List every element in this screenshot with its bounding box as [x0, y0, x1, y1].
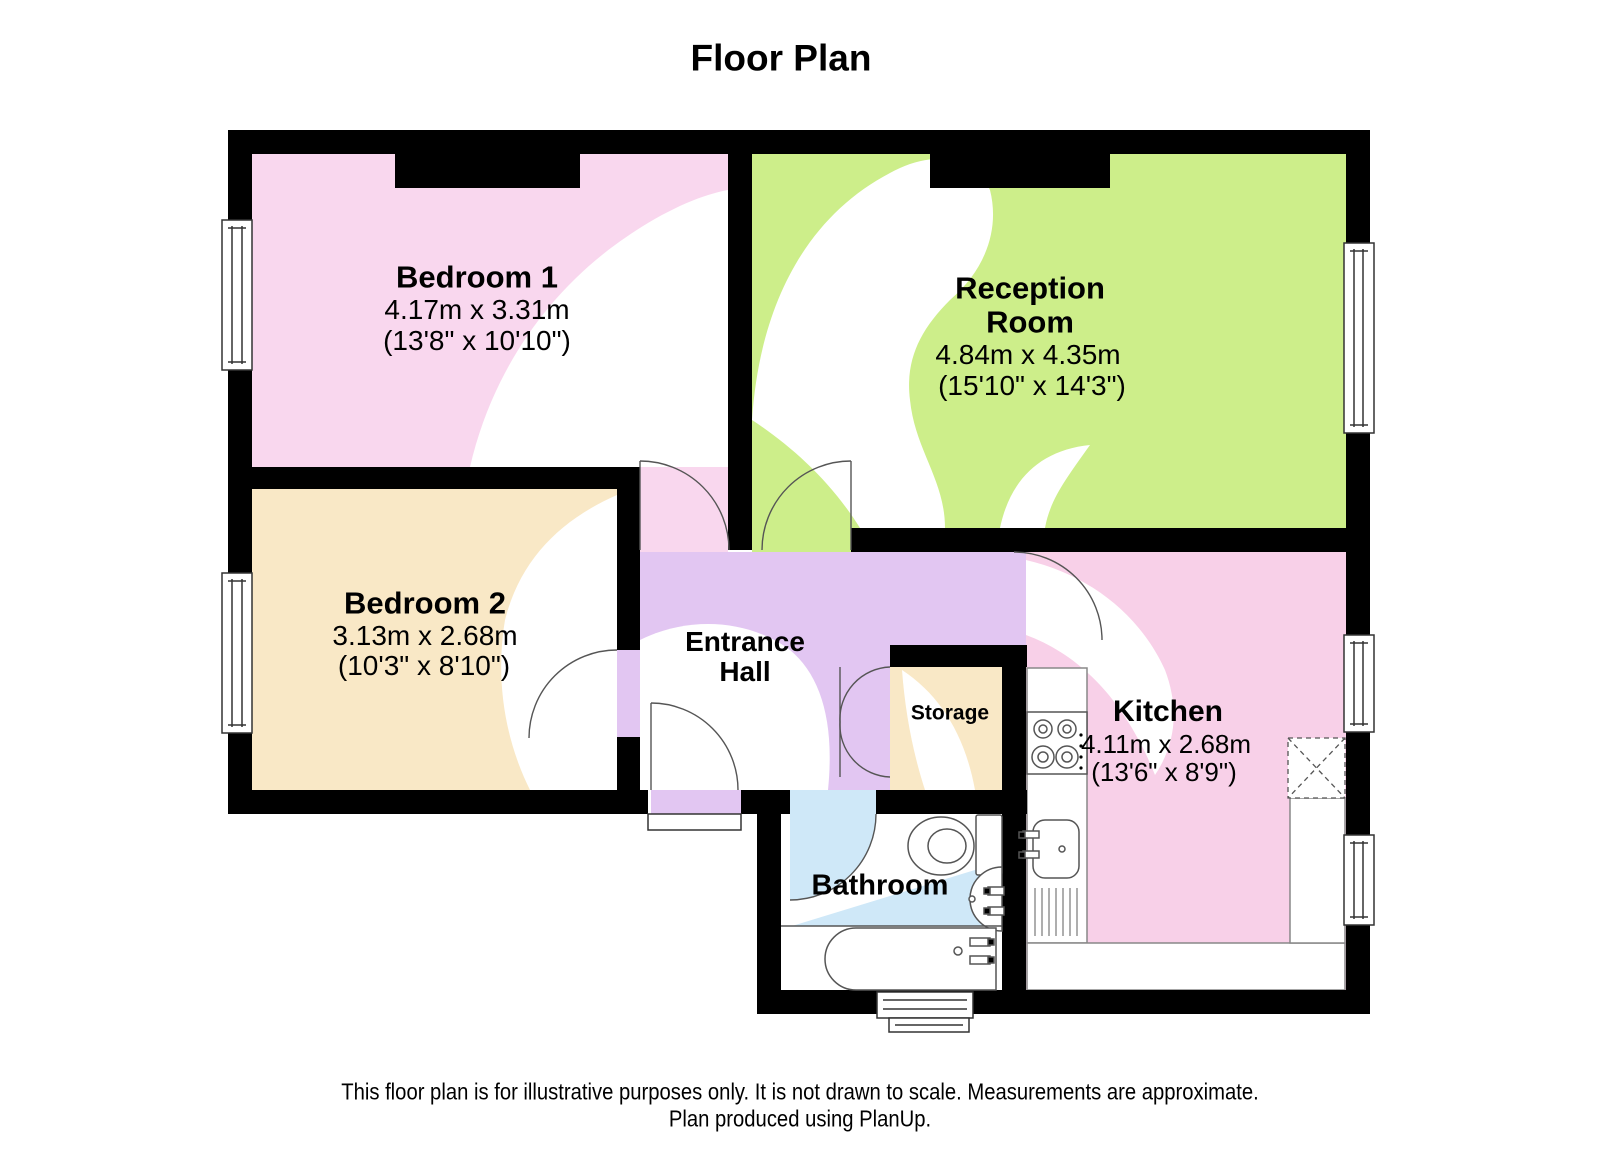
kitchen-dim-metric: 4.11m x 2.68m	[1081, 731, 1251, 757]
bedroom1-dim-metric: 4.17m x 3.31m	[384, 296, 569, 324]
toilet	[908, 815, 1002, 875]
chimney-breast-reception	[930, 154, 1110, 188]
bedroom2-label: Bedroom 2	[344, 588, 506, 619]
entrance-hall-label-line2: Hall	[719, 658, 770, 686]
kitchen-counter-bottom	[1027, 943, 1345, 990]
bedroom1-label: Bedroom 1	[396, 262, 558, 293]
window-reception	[1344, 243, 1374, 433]
reception-dim-metric: 4.84m x 4.35m	[935, 341, 1120, 369]
floor-plan-canvas	[0, 0, 1600, 1163]
bedroom2-dim-metric: 3.13m x 2.68m	[332, 622, 517, 650]
kitchen-dim-imperial: (13'6" x 8'9")	[1091, 759, 1236, 785]
reception-label-line2: Room	[986, 307, 1074, 338]
page-title: Floor Plan	[691, 40, 872, 77]
bathroom-label: Bathroom	[812, 872, 949, 901]
window-bathroom	[877, 992, 973, 1032]
kitchen-label: Kitchen	[1113, 697, 1223, 727]
chimney-breast-bedroom1	[395, 154, 580, 188]
hob	[1027, 712, 1087, 774]
window-bedroom1	[222, 220, 252, 370]
disclaimer-text: This floor plan is for illustrative purp…	[341, 1081, 1259, 1104]
reception-label-line1: Reception	[955, 273, 1105, 304]
window-kitchen-lower	[1344, 835, 1374, 925]
produced-by-text: Plan produced using PlanUp.	[669, 1108, 931, 1131]
front-door-threshold	[648, 814, 741, 830]
bedroom2-dim-imperial: (10'3" x 8'10")	[338, 652, 510, 680]
kitchen-unit-dashed	[1288, 738, 1345, 798]
reception-dim-imperial: (15'10" x 14'3")	[938, 372, 1126, 400]
bathtub	[825, 928, 996, 990]
window-kitchen-upper	[1344, 635, 1374, 732]
kitchen-counter-left	[1027, 668, 1087, 943]
bedroom1-dim-imperial: (13'8" x 10'10")	[383, 327, 571, 355]
entrance-hall-label-line1: Entrance	[685, 628, 805, 656]
window-bedroom2	[222, 573, 252, 733]
kitchen-counter-right	[1290, 798, 1345, 943]
storage-label: Storage	[911, 703, 989, 724]
